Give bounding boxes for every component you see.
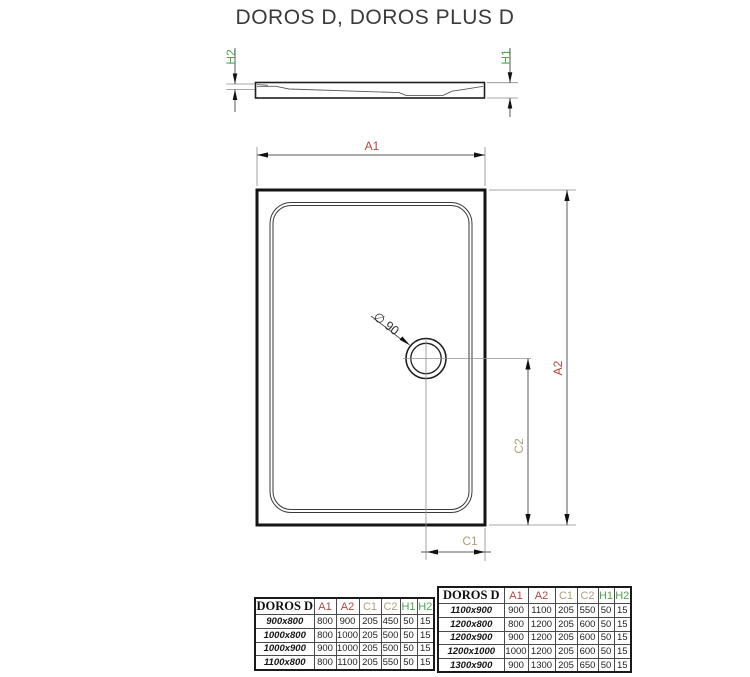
table-row: 1000x800 800 1000 205 500 50 15 [255, 628, 434, 642]
table-cell: 205 [359, 628, 381, 642]
arrowhead [564, 190, 569, 201]
table-cell: 1200 [528, 645, 555, 659]
arrowhead [400, 336, 411, 345]
table-cell: 500 [381, 642, 400, 656]
table-cell: 50 [598, 631, 614, 645]
table-cell: 450 [381, 615, 400, 629]
table-cell: 15 [614, 604, 631, 618]
model-cell: 1100x900 [438, 604, 504, 618]
arrowhead [233, 74, 238, 85]
column-header-a1: A1 [314, 598, 336, 615]
dim-label-c1: C1 [462, 535, 477, 547]
table-cell: 205 [359, 656, 381, 670]
table-cell: 50 [598, 617, 614, 631]
table-cell: 50 [400, 628, 417, 642]
table-cell: 500 [381, 628, 400, 642]
dimension-c1 [421, 528, 491, 561]
table-cell: 800 [314, 615, 336, 629]
column-header-h2: H2 [614, 587, 631, 604]
model-cell: 1000x800 [255, 628, 314, 642]
table-header-row: DOROS D A1 A2 C1 C2 H1 H2 [255, 598, 434, 615]
dim-label-a2: A2 [552, 361, 564, 376]
profile-inner-floor-line [257, 86, 483, 95]
plan-outline [257, 190, 485, 525]
dim-label-c2: C2 [513, 438, 525, 453]
table-cell: 800 [314, 656, 336, 670]
column-header-c2: C2 [577, 587, 598, 604]
table-cell: 205 [359, 615, 381, 629]
profile-view [226, 48, 518, 117]
table-cell: 1200 [528, 617, 555, 631]
model-cell: 900x800 [255, 615, 314, 629]
table-cell: 15 [614, 631, 631, 645]
table-cell: 1100 [336, 656, 359, 670]
dim-label-h2: H2 [225, 49, 237, 64]
table-row: 1000x900 900 1000 205 500 50 15 [255, 642, 434, 656]
table-cell: 550 [577, 604, 598, 618]
table-cell: 50 [598, 604, 614, 618]
arrowhead [508, 72, 513, 83]
arrowhead [257, 152, 268, 157]
table-row: 1200x900 900 1200 205 600 50 15 [438, 631, 631, 645]
table-cell: 50 [598, 659, 614, 673]
table-cell: 900 [504, 659, 528, 673]
table-title: DOROS D [255, 598, 314, 615]
table-cell: 50 [598, 645, 614, 659]
table-cell: 205 [555, 659, 577, 673]
table-cell: 1000 [336, 628, 359, 642]
table-cell: 1300 [528, 659, 555, 673]
dim-label-a1: A1 [365, 140, 380, 152]
table-cell: 205 [555, 645, 577, 659]
column-header-h2: H2 [417, 598, 434, 615]
dimension-c2 [525, 359, 530, 526]
table-cell: 205 [555, 604, 577, 618]
table-cell: 900 [504, 604, 528, 618]
table-cell: 205 [555, 617, 577, 631]
model-cell: 1300x900 [438, 659, 504, 673]
column-header-c1: C1 [359, 598, 381, 615]
table-cell: 15 [417, 615, 434, 629]
table-row: 1200x800 800 1200 205 600 50 15 [438, 617, 631, 631]
table-cell: 50 [400, 615, 417, 629]
model-cell: 1200x900 [438, 631, 504, 645]
table-cell: 550 [381, 656, 400, 670]
model-cell: 1200x1000 [438, 645, 504, 659]
column-header-c1: C1 [555, 587, 577, 604]
table-cell: 15 [417, 642, 434, 656]
arrowhead [474, 152, 485, 157]
arrowhead [427, 549, 438, 554]
technical-drawing [0, 0, 750, 600]
arrowhead [525, 514, 530, 525]
table-cell: 900 [336, 615, 359, 629]
table-title: DOROS D [438, 587, 504, 604]
table-cell: 800 [314, 628, 336, 642]
column-header-a1: A1 [504, 587, 528, 604]
table-cell: 205 [359, 642, 381, 656]
model-cell: 1200x800 [438, 617, 504, 631]
table-cell: 1100 [528, 604, 555, 618]
arrowhead [508, 98, 513, 109]
spec-table-left: DOROS D A1 A2 C1 C2 H1 H2 900x800 800 90… [254, 597, 435, 671]
table-cell: 900 [314, 642, 336, 656]
table-cell: 50 [400, 642, 417, 656]
table-cell: 1000 [336, 642, 359, 656]
table-cell: 600 [577, 617, 598, 631]
table-cell: 800 [504, 617, 528, 631]
table-cell: 15 [417, 628, 434, 642]
table-row: 1100x800 800 1100 205 550 50 15 [255, 656, 434, 670]
table-cell: 15 [417, 656, 434, 670]
table-cell: 1000 [504, 645, 528, 659]
profile-edge-detail-line [257, 85, 268, 86]
table-row: 900x800 800 900 205 450 50 15 [255, 615, 434, 629]
table-cell: 15 [614, 659, 631, 673]
table-cell: 600 [577, 631, 598, 645]
table-cell: 600 [577, 645, 598, 659]
column-header-h1: H1 [400, 598, 417, 615]
plan-view [257, 147, 576, 561]
column-header-a2: A2 [528, 587, 555, 604]
table-header-row: DOROS D A1 A2 C1 C2 H1 H2 [438, 587, 631, 604]
table-cell: 205 [555, 631, 577, 645]
table-row: 1300x900 900 1300 205 650 50 15 [438, 659, 631, 673]
model-cell: 1100x800 [255, 656, 314, 670]
table-cell: 900 [504, 631, 528, 645]
dim-label-h1: H1 [500, 49, 512, 64]
table-cell: 50 [400, 656, 417, 670]
column-header-c2: C2 [381, 598, 400, 615]
table-cell: 650 [577, 659, 598, 673]
arrowhead [525, 359, 530, 370]
column-header-h1: H1 [598, 587, 614, 604]
table-cell: 1200 [528, 631, 555, 645]
table-row: 1200x1000 1000 1200 205 600 50 15 [438, 645, 631, 659]
profile-outline [256, 83, 485, 99]
table-cell: 15 [614, 617, 631, 631]
arrowhead [474, 549, 485, 554]
column-header-a2: A2 [336, 598, 359, 615]
dimension-a2 [489, 190, 576, 525]
table-row: 1100x900 900 1100 205 550 50 15 [438, 604, 631, 618]
table-cell: 15 [614, 645, 631, 659]
spec-table-right: DOROS D A1 A2 C1 C2 H1 H2 1100x900 900 1… [437, 586, 632, 673]
plan-inner-rim-inner [273, 206, 469, 510]
arrowhead [564, 514, 569, 525]
model-cell: 1000x900 [255, 642, 314, 656]
arrowhead [233, 90, 238, 101]
